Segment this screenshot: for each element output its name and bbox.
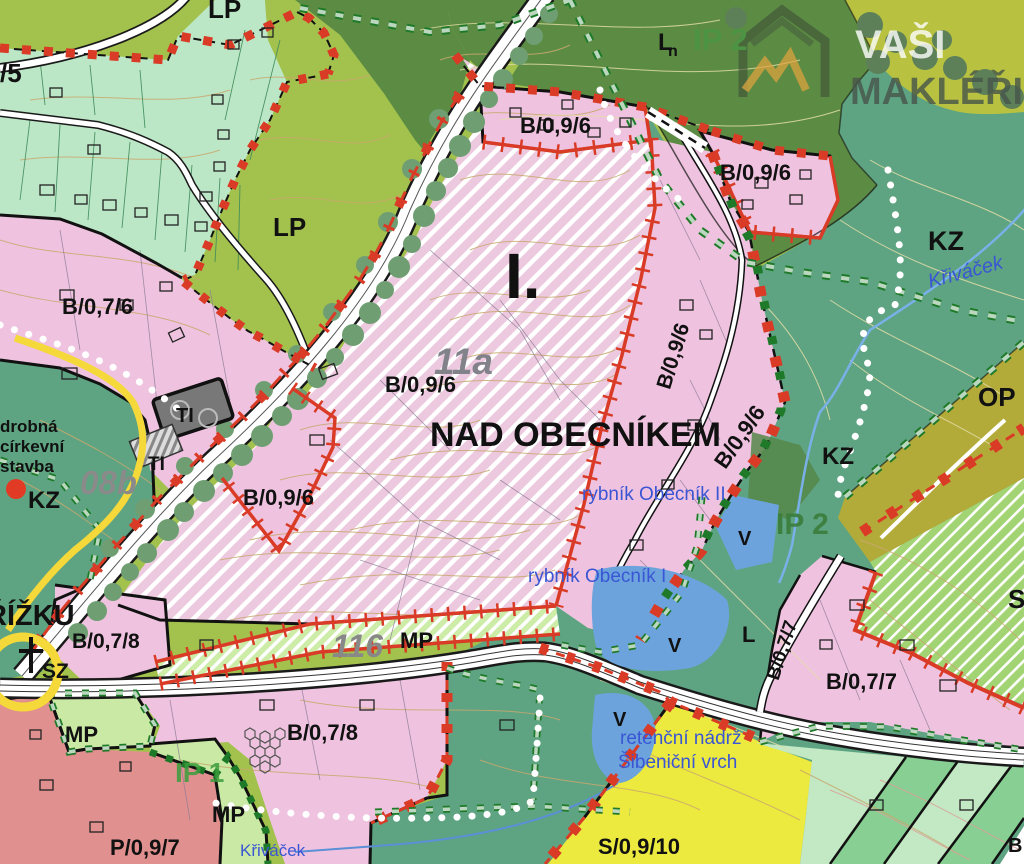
svg-text:P/0,9/7: P/0,9/7 [110,835,180,860]
svg-text:IP 2: IP 2 [776,508,829,541]
svg-text:NAD OBECNÍKEM: NAD OBECNÍKEM [430,416,721,454]
svg-text:LP: LP [208,0,241,24]
svg-text:KZ: KZ [928,226,964,256]
svg-text:OP: OP [978,382,1016,412]
svg-text:S: S [1008,584,1024,614]
svg-text:S/0,9/10: S/0,9/10 [598,834,680,859]
svg-text:B/0,7/7: B/0,7/7 [826,669,897,694]
svg-text:11a: 11a [434,341,493,382]
svg-text:MP: MP [400,628,433,653]
svg-text:B/0,7/8: B/0,7/8 [287,720,358,745]
svg-text:B: B [1008,835,1022,857]
svg-text:MP: MP [212,802,245,827]
svg-text:TI: TI [148,454,165,475]
svg-text:drobná: drobná [0,417,58,436]
svg-text:B/0,9/6: B/0,9/6 [243,485,314,510]
svg-text:B/0,7/6: B/0,7/6 [62,294,133,319]
svg-text:stavba: stavba [0,457,54,476]
svg-text:n: n [668,43,678,60]
svg-text:Křiváček: Křiváček [240,841,306,860]
svg-text:LP: LP [273,212,306,242]
svg-text:IP 1: IP 1 [175,757,224,788]
svg-text:I.: I. [505,240,541,312]
svg-text:B/0,9/6: B/0,9/6 [520,113,591,138]
svg-text:MP: MP [65,722,98,747]
svg-text:116: 116 [332,628,383,664]
svg-text:rybník Obecník I: rybník Obecník I [528,566,666,587]
svg-text:církevní: církevní [0,437,66,456]
svg-text:rybník Obecník II: rybník Obecník II [582,484,726,505]
svg-text:Šibeniční vrch: Šibeniční vrch [618,751,737,773]
svg-text:retenční nádrž: retenční nádrž [620,728,741,749]
svg-text:VAŠI: VAŠI [855,21,945,67]
svg-text:TI: TI [176,405,194,427]
svg-text:V: V [668,635,682,657]
svg-text:V: V [738,528,752,550]
svg-text:B/0,9/6: B/0,9/6 [720,160,791,185]
svg-text:08b: 08b [80,464,137,501]
svg-text:/5: /5 [0,58,22,88]
svg-text:KZ: KZ [28,487,60,514]
svg-text:IP 2: IP 2 [693,22,748,57]
svg-text:SZ: SZ [42,660,69,683]
svg-text:ŘÍŽKU: ŘÍŽKU [0,598,75,632]
svg-text:MAKLÉŘI: MAKLÉŘI [850,69,1023,113]
svg-text:B/0,7/8: B/0,7/8 [72,630,140,653]
svg-text:L: L [742,622,755,647]
svg-text:KZ: KZ [822,443,854,470]
